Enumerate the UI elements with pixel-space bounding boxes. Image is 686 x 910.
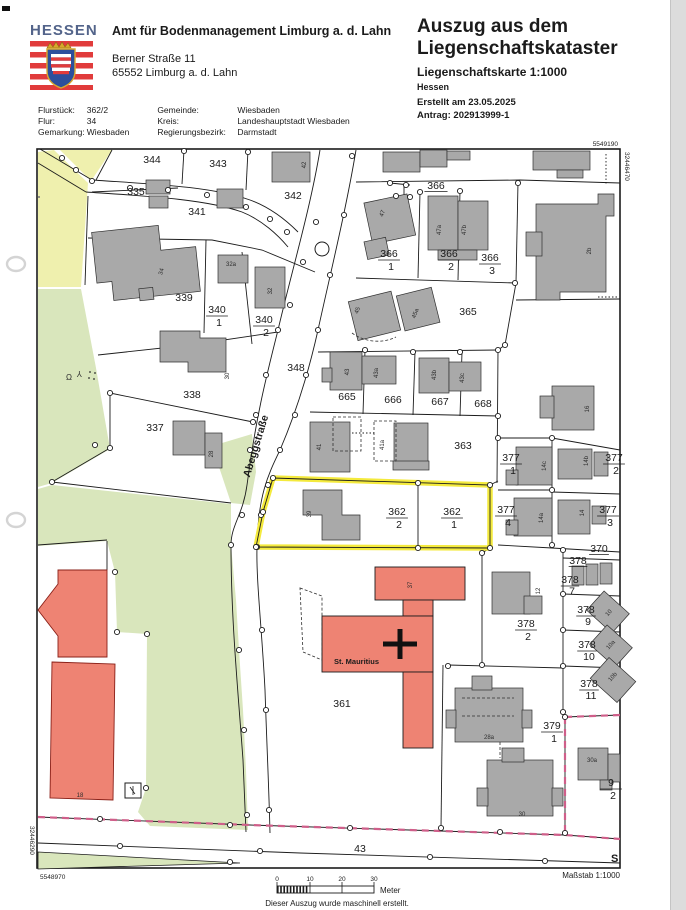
building-label: 16 <box>585 405 591 412</box>
punch-hole <box>7 513 25 527</box>
survey-point <box>417 189 422 194</box>
cadastral-extract-page: HESSEN Amt für Bodenmanagement Limburg a… <box>0 0 686 910</box>
parcel-label: 344 <box>143 154 161 166</box>
parcel-label: 2 <box>613 465 619 477</box>
survey-point <box>236 647 241 652</box>
parcel-label: 343 <box>209 158 227 170</box>
parcel-label: 348 <box>287 362 305 374</box>
survey-point <box>410 349 415 354</box>
parcel-label: 362 <box>443 506 461 518</box>
building-label: 43b <box>432 369 438 380</box>
parcel-label: 378 <box>517 618 535 630</box>
survey-point <box>300 259 305 264</box>
building-label: 43a <box>374 367 380 378</box>
parcel-label: 377 <box>502 452 520 464</box>
survey-point <box>403 182 408 187</box>
parcel-label: 363 <box>454 440 472 452</box>
survey-point <box>438 825 443 830</box>
parcel-label: 337 <box>146 422 164 434</box>
parcel-label: 1 <box>510 465 516 477</box>
survey-point <box>263 372 268 377</box>
survey-point <box>560 591 565 596</box>
survey-point <box>245 149 250 154</box>
parcel-label: 3 <box>489 265 495 277</box>
survey-point <box>49 479 54 484</box>
survey-point <box>144 631 149 636</box>
survey-point <box>512 280 517 285</box>
survey-point <box>549 542 554 547</box>
survey-point <box>270 475 275 480</box>
parcel-label: 378 <box>569 555 587 567</box>
parcel-label: 366 <box>427 180 445 192</box>
survey-point <box>292 412 297 417</box>
parcel-label: 1 <box>451 519 457 531</box>
church-name-label: St. Mauritius <box>334 657 379 666</box>
survey-point <box>407 194 412 199</box>
building-label: 30 <box>225 372 231 379</box>
punch-hole <box>7 257 25 271</box>
parcel-label: 668 <box>474 398 492 410</box>
northing-bottom-left: 5548970 <box>40 874 66 881</box>
survey-point <box>502 342 507 347</box>
survey-point <box>97 816 102 821</box>
survey-point <box>515 180 520 185</box>
building-label: 30a <box>587 758 598 764</box>
survey-point <box>495 413 500 418</box>
parcel-label: 378 <box>561 574 579 586</box>
parcel-label: 1 <box>551 733 557 745</box>
parcel-label: 9 <box>585 616 591 628</box>
building-label: 14b <box>584 455 590 466</box>
survey-point <box>445 663 450 668</box>
survey-point <box>487 482 492 487</box>
survey-point <box>347 825 352 830</box>
survey-point <box>228 542 233 547</box>
parcel-label: 2 <box>448 261 454 273</box>
survey-point <box>495 435 500 440</box>
parcel-label: 10 <box>583 651 595 663</box>
survey-point <box>495 347 500 352</box>
survey-point <box>315 327 320 332</box>
utility-building <box>125 783 141 798</box>
parcel-label: 340 <box>255 314 273 326</box>
survey-point <box>112 569 117 574</box>
parcel-label: 370 <box>590 543 608 555</box>
parcel-label: 366 <box>481 252 499 264</box>
parcel-label: 365 <box>459 306 477 318</box>
building-label: 32 <box>268 287 274 294</box>
parcel-label: 379 <box>543 720 561 732</box>
survey-point <box>549 487 554 492</box>
survey-point <box>259 627 264 632</box>
survey-point <box>92 442 97 447</box>
survey-point <box>275 327 280 332</box>
survey-point <box>549 435 554 440</box>
parcel-label: 9 <box>608 777 614 789</box>
survey-point <box>241 727 246 732</box>
scale-tick-0: 0 <box>275 876 279 883</box>
survey-point <box>257 848 262 853</box>
survey-point <box>227 822 232 827</box>
parcel-label: 3 <box>607 517 613 529</box>
parcel-label: 1 <box>216 317 222 329</box>
survey-point <box>560 627 565 632</box>
survey-point <box>250 419 255 424</box>
survey-point <box>415 480 420 485</box>
survey-point <box>560 547 565 552</box>
survey-point <box>265 482 270 487</box>
survey-point <box>107 390 112 395</box>
survey-point <box>263 707 268 712</box>
building-label: 43c <box>460 373 466 383</box>
parcel-label: 366 <box>380 248 398 260</box>
s-marker: S <box>611 853 618 865</box>
survey-point <box>59 155 64 160</box>
meter-label: Meter <box>380 886 401 895</box>
parcel-label: 7 <box>569 586 575 598</box>
building-label: 14a <box>539 512 545 523</box>
survey-point <box>244 812 249 817</box>
masstab-label: Maßstab 1:1000 <box>562 871 620 880</box>
survey-point <box>327 272 332 277</box>
svg-text:Ω: Ω <box>66 373 72 382</box>
survey-point <box>117 843 122 848</box>
easting-left: 32446290 <box>28 826 35 855</box>
parcel-label: 4 <box>505 517 511 529</box>
building-label: 42 <box>302 161 308 168</box>
parcel-label: 667 <box>431 396 449 408</box>
building-label: 2b <box>587 247 593 254</box>
parcel-label: 2 <box>610 790 616 802</box>
survey-point <box>73 167 78 172</box>
parcel-label: 11 <box>586 690 597 702</box>
parcel-label: 1 <box>388 261 394 273</box>
building-label: 14c <box>542 461 548 471</box>
survey-point <box>560 709 565 714</box>
parcel-label: 362 <box>388 506 406 518</box>
building-label: 37 <box>408 581 414 588</box>
parcel-label: 2 <box>263 327 269 339</box>
building-label: 30 <box>519 812 526 818</box>
survey-point <box>487 545 492 550</box>
survey-point <box>362 347 367 352</box>
parcel-label: 335 <box>127 186 145 198</box>
survey-point <box>89 178 94 183</box>
parcel-label: 2 <box>525 631 531 643</box>
survey-point <box>560 663 565 668</box>
northing-top-right: 5549190 <box>593 141 619 148</box>
scale-tick-30: 30 <box>370 876 378 883</box>
survey-point <box>260 509 265 514</box>
building-label: 14 <box>580 509 586 516</box>
survey-point <box>114 629 119 634</box>
parcel-label: 378 <box>580 678 598 690</box>
parcel-label: 341 <box>188 206 206 218</box>
parcel-label: 338 <box>183 389 201 401</box>
survey-point <box>253 544 258 549</box>
survey-point <box>341 212 346 217</box>
survey-point <box>313 219 318 224</box>
survey-point <box>165 187 170 192</box>
easting-right: 32446470 <box>623 152 630 181</box>
survey-point <box>497 829 502 834</box>
parcel-label: 665 <box>338 391 356 403</box>
parcel-label: 366 <box>440 248 458 260</box>
survey-point <box>542 858 547 863</box>
building-label: 47a <box>437 224 443 235</box>
survey-point <box>277 447 282 452</box>
building-label: 41 <box>317 443 323 450</box>
parcel-label: 342 <box>284 190 302 202</box>
parcel-label: 2 <box>396 519 402 531</box>
survey-point <box>427 854 432 859</box>
building-label: 41a <box>380 439 386 450</box>
building-label: 39 <box>307 510 313 517</box>
survey-point <box>284 229 289 234</box>
survey-point <box>387 180 392 185</box>
building-label: 32a <box>226 262 237 268</box>
building-label: 28a <box>484 735 495 741</box>
survey-point <box>107 445 112 450</box>
survey-point <box>267 216 272 221</box>
parcel-label: 377 <box>605 452 623 464</box>
survey-point <box>457 188 462 193</box>
survey-point <box>457 349 462 354</box>
parcel-label: 361 <box>333 698 351 710</box>
survey-point <box>266 807 271 812</box>
survey-point <box>479 550 484 555</box>
survey-point <box>349 153 354 158</box>
building-label: 43 <box>345 368 351 375</box>
building-label: 47b <box>462 224 468 235</box>
survey-point <box>562 714 567 719</box>
parcel-label: 378 <box>577 604 595 616</box>
building-label: 18 <box>77 793 84 799</box>
survey-point <box>562 830 567 835</box>
survey-point <box>243 204 248 209</box>
svg-text:Y: Y <box>76 369 82 378</box>
survey-point <box>287 302 292 307</box>
survey-point <box>393 193 398 198</box>
parcel-label: 378 <box>578 639 596 651</box>
survey-point <box>479 662 484 667</box>
survey-point <box>143 785 148 790</box>
scale-tick-10: 10 <box>306 876 314 883</box>
building-label: 28 <box>209 450 215 457</box>
disclaimer: Dieser Auszug wurde maschinell erstellt. <box>265 899 409 908</box>
survey-point <box>204 192 209 197</box>
survey-point <box>239 512 244 517</box>
parcel-label: 377 <box>497 504 515 516</box>
survey-point <box>181 148 186 153</box>
scale-bar: 0 10 20 30 Meter <box>275 876 401 895</box>
survey-point <box>415 545 420 550</box>
scale-tick-20: 20 <box>338 876 346 883</box>
parcel-label: 377 <box>599 504 617 516</box>
parcel-label: 666 <box>384 394 402 406</box>
cadastral-map: Ω Y 5549190 32446470 32446290 5548970 Ab… <box>0 0 686 910</box>
survey-point <box>227 859 232 864</box>
building-label: 12 <box>536 587 542 594</box>
parcel-label: 43 <box>354 843 366 855</box>
parcel-label: 339 <box>175 292 193 304</box>
parcel-label: 340 <box>208 304 226 316</box>
